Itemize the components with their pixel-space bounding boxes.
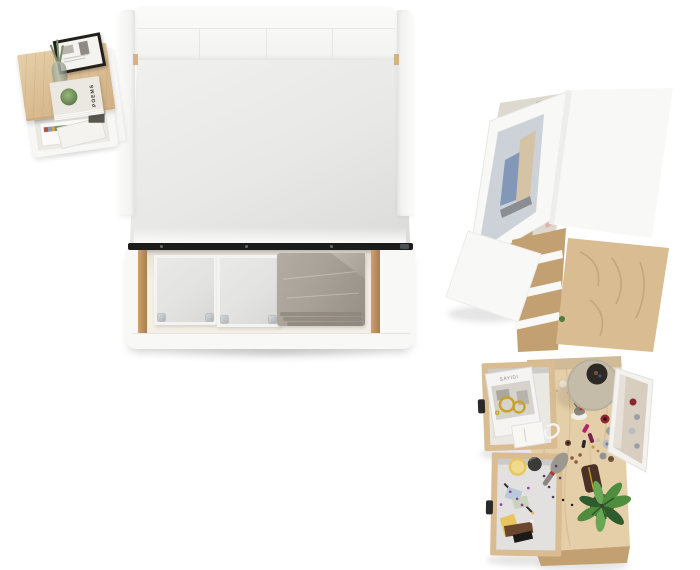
lamp-inner-figurine-detail [599, 375, 602, 378]
mirror-reflection-perfume [634, 443, 640, 449]
perfume-beige [596, 438, 601, 443]
gold-cap [591, 445, 594, 448]
perfume-tall-cap [605, 442, 608, 445]
gold-cap [597, 450, 600, 453]
perfume-amber [608, 456, 614, 462]
drawer2-handle [486, 500, 493, 514]
small-white-box [511, 421, 545, 448]
white-box [511, 421, 545, 448]
chest-green-item [559, 316, 565, 322]
chest-oak-top [556, 238, 669, 352]
wardrobe-chest-vanity-group: SAYIDI [0, 0, 700, 570]
lamp-inner-figurine [594, 371, 598, 375]
mirror-reflection-perfume [634, 414, 640, 420]
drawer1-handle [478, 399, 485, 413]
mirror-reflection-perfume-red [630, 399, 637, 406]
vanity-drawer-1: SAYIDI [476, 361, 557, 452]
perfume-red-cap [603, 417, 606, 420]
perfume-small [600, 453, 607, 460]
drawer2-inner-shadow [498, 459, 557, 466]
bedroom-furniture-top-view: POEMS [0, 0, 700, 570]
mirror-reflection-perfume [629, 428, 636, 435]
small-brown-bottle-cap [567, 442, 569, 444]
